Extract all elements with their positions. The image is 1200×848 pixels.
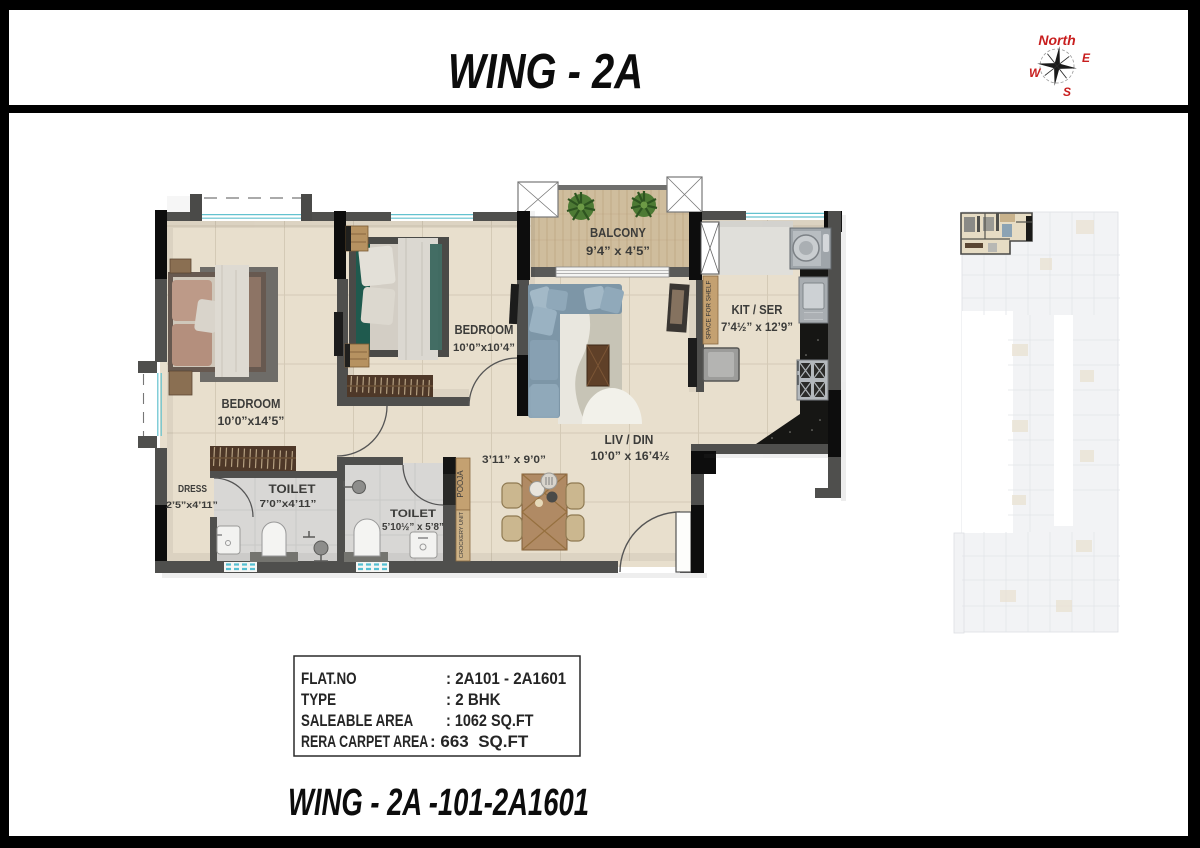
svg-text:10’0” x 16’4½: 10’0” x 16’4½ — [591, 449, 670, 462]
svg-text:WING - 2A: WING - 2A — [448, 45, 643, 99]
svg-text:10’0”x10’4”: 10’0”x10’4” — [453, 342, 515, 354]
svg-text:: 1062 SQ.FT: : 1062 SQ.FT — [446, 712, 534, 730]
svg-text:W: W — [1029, 66, 1042, 80]
svg-text:FLAT.NO: FLAT.NO — [301, 670, 357, 689]
svg-text:DRESS: DRESS — [178, 483, 207, 494]
svg-text:SPACE FOR SHELF: SPACE FOR SHELF — [706, 280, 713, 339]
svg-text:E: E — [1082, 51, 1091, 65]
svg-text:North: North — [1038, 32, 1075, 48]
svg-text:5’10½” x 5’8”: 5’10½” x 5’8” — [382, 522, 444, 533]
svg-text:9’4” x 4’5”: 9’4” x 4’5” — [586, 245, 650, 258]
svg-text:POOJA: POOJA — [456, 470, 465, 498]
svg-text:BALCONY: BALCONY — [590, 225, 646, 240]
svg-text:LIV / DIN: LIV / DIN — [605, 433, 654, 447]
svg-text:: 2 BHK: : 2 BHK — [446, 690, 501, 709]
svg-text:BEDROOM: BEDROOM — [455, 322, 514, 337]
svg-text:7’4½” x 12’9”: 7’4½” x 12’9” — [721, 322, 793, 334]
svg-text:BEDROOM: BEDROOM — [222, 396, 281, 411]
svg-text:: 2A101 - 2A1601: : 2A101 - 2A1601 — [446, 669, 566, 688]
svg-text:WING - 2A -101-2A1601: WING - 2A -101-2A1601 — [288, 782, 589, 824]
svg-text:S: S — [1063, 85, 1071, 99]
svg-text:CROCKERY UNIT: CROCKERY UNIT — [459, 511, 465, 558]
svg-text:: 663 SQ.FT: : 663 SQ.FT — [430, 732, 529, 751]
svg-text:TOILET: TOILET — [390, 507, 437, 520]
svg-text:KIT / SER: KIT / SER — [732, 302, 783, 317]
svg-text:RERA CARPET AREA: RERA CARPET AREA — [301, 733, 428, 751]
svg-text:3’11” x 9’0”: 3’11” x 9’0” — [482, 453, 546, 466]
svg-text:10’0”x14’5”: 10’0”x14’5” — [218, 414, 285, 428]
svg-text:SALEABLE AREA: SALEABLE AREA — [301, 712, 413, 731]
svg-text:TOILET: TOILET — [269, 483, 316, 496]
svg-text:7’0”x4’11”: 7’0”x4’11” — [260, 499, 317, 510]
svg-text:TYPE: TYPE — [301, 691, 336, 710]
svg-text:2’5”x4’11”: 2’5”x4’11” — [166, 501, 218, 511]
